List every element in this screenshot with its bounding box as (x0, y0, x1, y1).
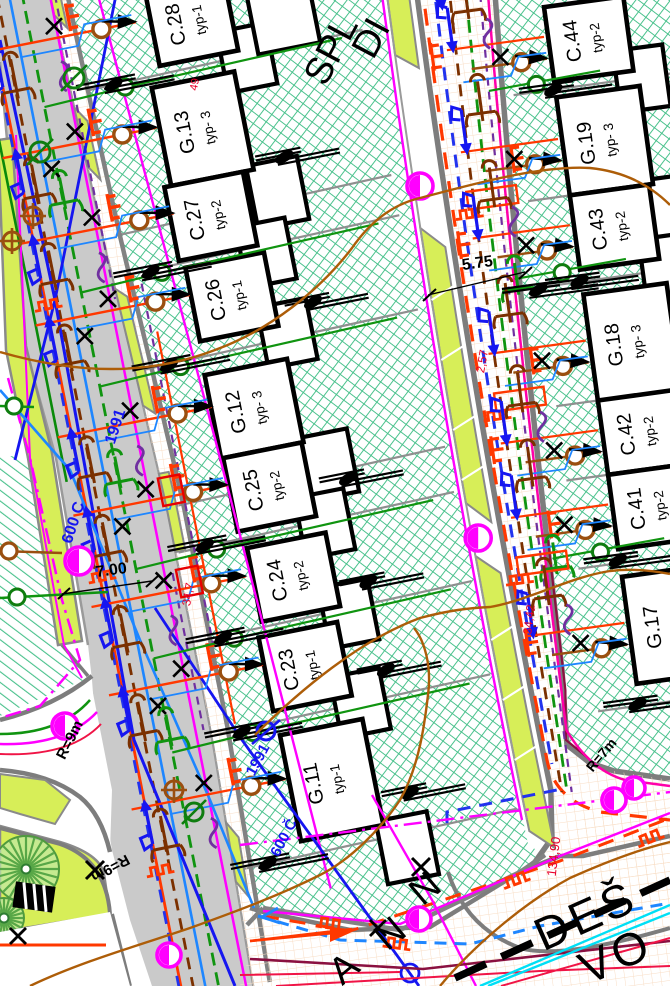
svg-text:49: 49 (188, 77, 202, 91)
